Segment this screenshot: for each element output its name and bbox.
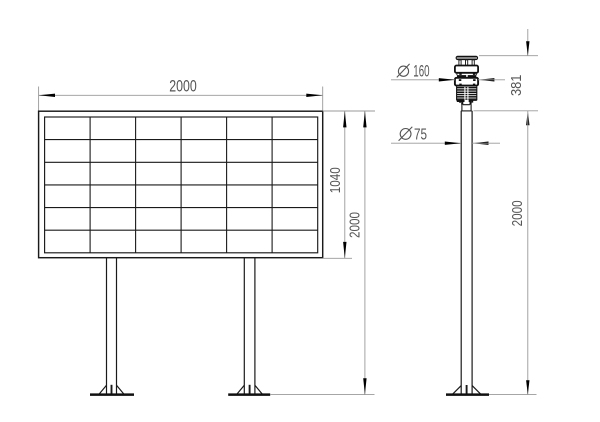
svg-text:381: 381	[508, 75, 525, 97]
svg-text:2000: 2000	[169, 77, 197, 96]
svg-text:160: 160	[413, 62, 429, 80]
svg-text:2000: 2000	[347, 212, 364, 238]
svg-text:2000: 2000	[509, 200, 526, 226]
svg-text:75: 75	[414, 127, 427, 144]
svg-text:1040: 1040	[327, 167, 344, 193]
